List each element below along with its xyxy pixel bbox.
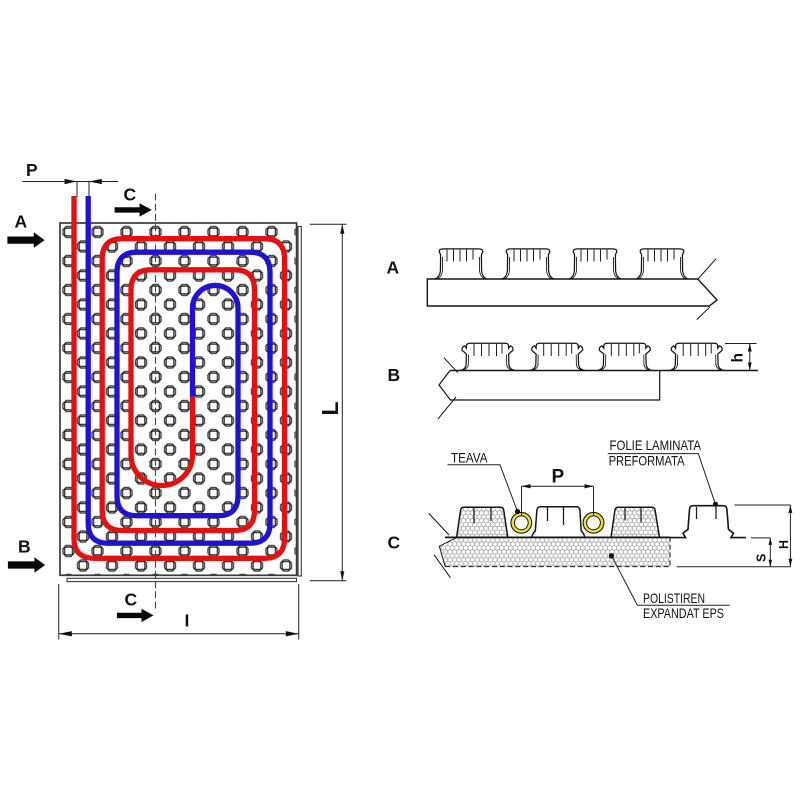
svg-text:B: B	[18, 537, 31, 557]
svg-text:S: S	[755, 554, 769, 562]
svg-text:POLISTIREN: POLISTIREN	[643, 591, 705, 606]
svg-text:TEAVA: TEAVA	[451, 451, 488, 466]
svg-text:H: H	[777, 540, 791, 549]
svg-text:PREFORMATA: PREFORMATA	[609, 454, 686, 469]
svg-text:FOLIE LAMINATA: FOLIE LAMINATA	[610, 438, 702, 453]
svg-text:EXPANDAT EPS: EXPANDAT EPS	[643, 606, 724, 621]
svg-text:I: I	[185, 611, 190, 631]
svg-text:A: A	[15, 212, 28, 232]
svg-text:h: h	[730, 353, 747, 362]
svg-text:P: P	[26, 160, 38, 180]
svg-text:A: A	[387, 258, 400, 278]
svg-text:C: C	[124, 185, 137, 205]
svg-text:P: P	[552, 467, 565, 488]
svg-text:C: C	[125, 590, 138, 610]
svg-text:C: C	[388, 533, 401, 553]
svg-text:L: L	[317, 401, 343, 415]
svg-text:B: B	[388, 365, 401, 385]
